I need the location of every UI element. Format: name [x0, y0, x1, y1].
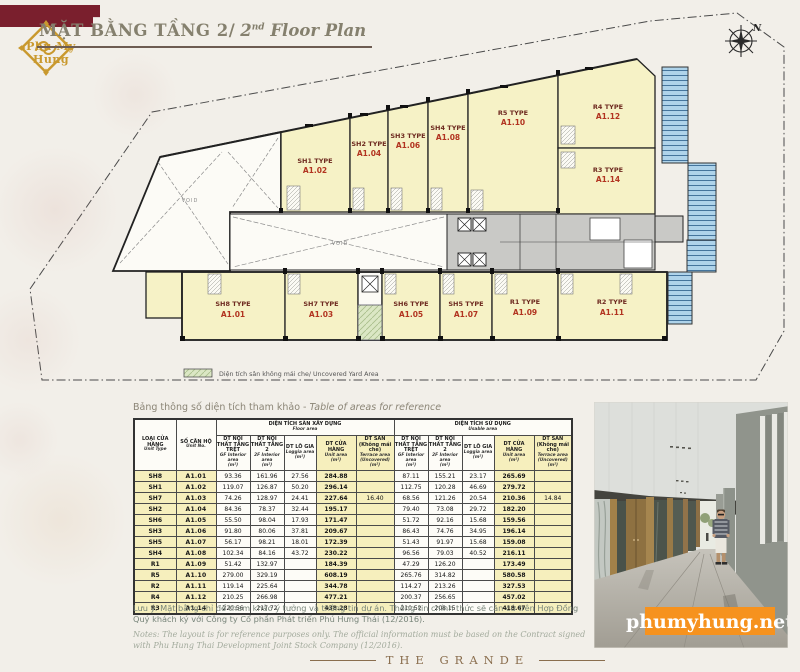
void-label: VOID: [182, 198, 199, 204]
sub-col-header: DT CỬA HÀNGUnit area(m²): [316, 436, 356, 471]
table-cell: 216.11: [494, 548, 534, 559]
table-cell: [356, 581, 394, 592]
table-cell: [356, 570, 394, 581]
sub-col-header: DT SÂN (Không mái che)Terrace area (Unco…: [356, 436, 394, 471]
table-row: R4A1.12210.25266.98477.21200.37256.65457…: [134, 592, 572, 603]
table-cell: 121.26: [428, 493, 462, 504]
table-cell: SH2: [134, 504, 176, 515]
table-cell: [534, 482, 572, 493]
table-cell: 213.26: [428, 581, 462, 592]
table-cell: 23.17: [462, 471, 494, 482]
table-cell: 126.87: [250, 482, 284, 493]
table-row: SH8A1.0193.36161.9627.56284.8887.11155.2…: [134, 471, 572, 482]
table-cell: 98.21: [250, 537, 284, 548]
table-cell: 284.88: [316, 471, 356, 482]
floor-plan: VOID VOID: [0, 0, 800, 400]
stair-ramp-a: [662, 67, 688, 163]
table-cell: [356, 592, 394, 603]
svg-text:SH7 TYPE: SH7 TYPE: [303, 300, 338, 308]
svg-text:SH1 TYPE: SH1 TYPE: [297, 157, 332, 165]
table-cell: 73.08: [428, 504, 462, 515]
table-cell: 74.76: [428, 526, 462, 537]
table-cell: 112.75: [394, 482, 428, 493]
svg-text:SH2 TYPE: SH2 TYPE: [351, 140, 386, 148]
svg-text:SH8 TYPE: SH8 TYPE: [215, 300, 250, 308]
table-cell: SH3: [134, 526, 176, 537]
svg-text:A1.01: A1.01: [221, 310, 245, 319]
table-cell: SH4: [134, 548, 176, 559]
page-title: MẶT BẰNG TẦNG 2/2nd Floor Plan: [37, 6, 372, 48]
table-row: R5A1.10279.00329.19608.19265.76314.82580…: [134, 570, 572, 581]
table-cell: [462, 570, 494, 581]
table-cell: 155.21: [428, 471, 462, 482]
table-cell: 79.03: [428, 548, 462, 559]
table-cell: 79.40: [394, 504, 428, 515]
title-english: 2nd Floor Plan: [240, 21, 366, 40]
table-cell: 68.56: [394, 493, 428, 504]
svg-text:A1.04: A1.04: [357, 149, 381, 158]
table-row: SH1A1.02119.07126.8750.20296.14112.75120…: [134, 482, 572, 493]
table-cell: A1.11: [176, 581, 216, 592]
table-cell: 200.37: [394, 592, 428, 603]
table-cell: 87.11: [394, 471, 428, 482]
unit-R2: [558, 272, 667, 340]
note-english: Notes: The layout is for reference purpo…: [133, 630, 591, 651]
title-vietnamese: MẶT BẰNG TẦNG 2/: [39, 21, 235, 40]
table-cell: [534, 548, 572, 559]
table-cell: [356, 515, 394, 526]
table-cell: 344.78: [316, 581, 356, 592]
svg-text:R5 TYPE: R5 TYPE: [498, 109, 528, 117]
table-cell: A1.06: [176, 526, 216, 537]
table-cell: 126.20: [428, 559, 462, 570]
table-cell: 98.04: [250, 515, 284, 526]
table-cell: 93.36: [216, 471, 250, 482]
table-cell: 279.00: [216, 570, 250, 581]
svg-text:A1.12: A1.12: [596, 112, 620, 121]
table-cell: 18.01: [284, 537, 316, 548]
top-units: [281, 59, 655, 214]
sub-col-header: DT CỬA HÀNGUnit area(m²): [494, 436, 534, 471]
table-cell: 477.21: [316, 592, 356, 603]
col-header-unit-no: SỐ CĂN HỘ Unit No.: [176, 419, 216, 471]
svg-text:SH6 TYPE: SH6 TYPE: [393, 300, 428, 308]
sub-col-header: DT NỘI THẤT TẦNG TRỆTGF Interior area(m²…: [394, 436, 428, 471]
table-cell: A1.03: [176, 493, 216, 504]
stair-ramp-b: [688, 163, 716, 240]
table-cell: A1.05: [176, 515, 216, 526]
svg-text:R3 TYPE: R3 TYPE: [593, 166, 623, 174]
table-cell: 580.58: [494, 570, 534, 581]
table-cell: 27.56: [284, 471, 316, 482]
table-cell: 46.69: [462, 482, 494, 493]
table-cell: 102.34: [216, 548, 250, 559]
table-cell: [534, 570, 572, 581]
table-cell: 74.26: [216, 493, 250, 504]
table-cell: [284, 592, 316, 603]
svg-text:SH4 TYPE: SH4 TYPE: [430, 124, 465, 132]
table-cell: A1.01: [176, 471, 216, 482]
compass-n-label: N: [752, 24, 762, 34]
table-cell: 51.72: [394, 515, 428, 526]
table-cell: 182.20: [494, 504, 534, 515]
table-row: SH5A1.0756.1798.2118.01172.3951.4391.971…: [134, 537, 572, 548]
table-row: R2A1.11119.14225.64344.78114.27213.26327…: [134, 581, 572, 592]
table-cell: SH8: [134, 471, 176, 482]
table-cell: 265.76: [394, 570, 428, 581]
table-cell: [462, 559, 494, 570]
legend-label: Diện tích sân không mái che/ Uncovered Y…: [219, 370, 379, 378]
walkway-photo: phumyhung.net: [594, 402, 788, 648]
svg-text:A1.14: A1.14: [596, 175, 620, 184]
col-header-unit-type: LOẠI CỬA HÀNG Unit Type: [134, 419, 176, 471]
table-cell: SH5: [134, 537, 176, 548]
table-cell: 327.53: [494, 581, 534, 592]
table-cell: 37.81: [284, 526, 316, 537]
table-cell: [534, 592, 572, 603]
table-cell: A1.07: [176, 537, 216, 548]
plan-legend: Diện tích sân không mái che/ Uncovered Y…: [184, 369, 379, 378]
table-cell: [356, 504, 394, 515]
table-cell: 96.56: [394, 548, 428, 559]
table-cell: SH7: [134, 493, 176, 504]
table-cell: 184.39: [316, 559, 356, 570]
table-cell: 256.65: [428, 592, 462, 603]
group-header-usable-area: DIỆN TÍCH SỬ DỤNG Usable area: [394, 419, 572, 436]
footer: THE GRANDE: [310, 653, 605, 667]
table-row: SH7A1.0374.26128.9724.41227.6416.4068.56…: [134, 493, 572, 504]
svg-text:A1.07: A1.07: [454, 310, 478, 319]
sub-col-header: DT NỘI THẤT TẦNG 22F Interior area(m²): [428, 436, 462, 471]
table-cell: 210.25: [216, 592, 250, 603]
table-cell: A1.09: [176, 559, 216, 570]
svg-text:A1.03: A1.03: [309, 310, 333, 319]
svg-text:A1.06: A1.06: [396, 141, 420, 150]
svg-text:R4 TYPE: R4 TYPE: [593, 103, 623, 111]
table-cell: 91.80: [216, 526, 250, 537]
table-cell: 196.14: [494, 526, 534, 537]
table-cell: 119.14: [216, 581, 250, 592]
table-cell: 159.08: [494, 537, 534, 548]
table-cell: A1.10: [176, 570, 216, 581]
unit-left-sliver: [146, 272, 182, 318]
svg-text:A1.02: A1.02: [303, 166, 327, 175]
corridor: VOID: [230, 214, 683, 270]
table-title: Bảng thông số diện tích tham khảo - Tabl…: [133, 402, 441, 413]
table-cell: 80.06: [250, 526, 284, 537]
svg-text:SH5 TYPE: SH5 TYPE: [448, 300, 483, 308]
table-row: R1A1.0951.42132.97184.3947.29126.20173.4…: [134, 559, 572, 570]
footer-rule-right: [539, 660, 605, 661]
table-cell: 230.22: [316, 548, 356, 559]
table-cell: 172.39: [316, 537, 356, 548]
table-cell: 16.40: [356, 493, 394, 504]
table-cell: [356, 559, 394, 570]
table-cell: 20.54: [462, 493, 494, 504]
svg-text:A1.11: A1.11: [600, 308, 624, 317]
svg-text:R2 TYPE: R2 TYPE: [597, 298, 627, 306]
table-row: SH2A1.0484.3678.3732.44195.1779.4073.082…: [134, 504, 572, 515]
table-cell: [462, 581, 494, 592]
stair-structures: [662, 67, 716, 324]
table-cell: 32.44: [284, 504, 316, 515]
brochure-page: VOID VOID: [0, 0, 800, 672]
table-cell: [534, 581, 572, 592]
table-cell: 296.14: [316, 482, 356, 493]
table-cell: [284, 570, 316, 581]
sub-col-header: DT LÔ GIALoggia area(m²): [462, 436, 494, 471]
table-cell: R5: [134, 570, 176, 581]
table-cell: 14.84: [534, 493, 572, 504]
svg-text:SH3 TYPE: SH3 TYPE: [390, 132, 425, 140]
table-cell: [356, 471, 394, 482]
note-vietnamese: Lưu ý: Mặt bằng chỉ để tham khảo ý tưởng…: [133, 603, 591, 625]
table-row: SH4A1.08102.3484.1643.72230.2296.5679.03…: [134, 548, 572, 559]
table-cell: [534, 537, 572, 548]
table-cell: 266.98: [250, 592, 284, 603]
table-cell: 91.97: [428, 537, 462, 548]
table-cell: 17.93: [284, 515, 316, 526]
table-cell: 43.72: [284, 548, 316, 559]
table-cell: 227.64: [316, 493, 356, 504]
table-cell: 132.97: [250, 559, 284, 570]
table-cell: 78.37: [250, 504, 284, 515]
table-cell: 47.29: [394, 559, 428, 570]
table-cell: 161.96: [250, 471, 284, 482]
sub-col-header: DT LÔ GIALoggia area(m²): [284, 436, 316, 471]
table-cell: 51.43: [394, 537, 428, 548]
table-cell: 209.67: [316, 526, 356, 537]
table-cell: R4: [134, 592, 176, 603]
table-cell: 457.02: [494, 592, 534, 603]
table-cell: SH6: [134, 515, 176, 526]
stair-ramp-d: [687, 240, 716, 272]
table-cell: 279.72: [494, 482, 534, 493]
table-cell: 159.56: [494, 515, 534, 526]
table-cell: [356, 526, 394, 537]
table-cell: [534, 504, 572, 515]
table-cell: 56.17: [216, 537, 250, 548]
svg-text:R1 TYPE: R1 TYPE: [510, 298, 540, 306]
table-cell: 84.36: [216, 504, 250, 515]
table-cell: 92.16: [428, 515, 462, 526]
svg-text:A1.10: A1.10: [501, 118, 525, 127]
areas-table: LOẠI CỬA HÀNG Unit Type SỐ CĂN HỘ Unit N…: [133, 418, 573, 615]
table-cell: 34.95: [462, 526, 494, 537]
table-cell: 15.68: [462, 515, 494, 526]
group-header-floor-area: DIỆN TÍCH SÀN XÂY DỰNG Floor area: [216, 419, 394, 436]
table-cell: [284, 581, 316, 592]
table-row: SH3A1.0691.8080.0637.81209.6786.4374.763…: [134, 526, 572, 537]
table-cell: [534, 526, 572, 537]
table-cell: [462, 592, 494, 603]
table-cell: 265.69: [494, 471, 534, 482]
project-brand: THE GRANDE: [386, 653, 530, 667]
table-cell: 210.36: [494, 493, 534, 504]
table-cell: 195.17: [316, 504, 356, 515]
table-cell: 173.49: [494, 559, 534, 570]
table-row: SH6A1.0555.5098.0417.93171.4751.7292.161…: [134, 515, 572, 526]
table-cell: [534, 471, 572, 482]
svg-text:A1.08: A1.08: [436, 133, 460, 142]
table-cell: A1.02: [176, 482, 216, 493]
table-cell: 15.68: [462, 537, 494, 548]
table-cell: R1: [134, 559, 176, 570]
table-cell: 114.27: [394, 581, 428, 592]
table-cell: R2: [134, 581, 176, 592]
sub-col-header: DT NỘI THẤT TẦNG 22F Interior area(m²): [250, 436, 284, 471]
table-cell: [356, 537, 394, 548]
sub-col-header: DT NỘI THẤT TẦNG TRỆTGF Interior area(m²…: [216, 436, 250, 471]
table-cell: A1.04: [176, 504, 216, 515]
table-cell: SH1: [134, 482, 176, 493]
table-cell: 119.07: [216, 482, 250, 493]
table-cell: 171.47: [316, 515, 356, 526]
table-cell: [284, 559, 316, 570]
table-cell: [534, 515, 572, 526]
table-cell: A1.12: [176, 592, 216, 603]
table-cell: 55.50: [216, 515, 250, 526]
table-cell: 84.16: [250, 548, 284, 559]
notes: Lưu ý: Mặt bằng chỉ để tham khảo ý tưởng…: [133, 603, 591, 651]
void-label: VOID: [332, 241, 349, 247]
svg-text:A1.09: A1.09: [513, 308, 537, 317]
table-cell: [534, 559, 572, 570]
site-url[interactable]: phumyhung.net: [626, 611, 788, 633]
svg-text:A1.05: A1.05: [399, 310, 423, 319]
footer-rule-left: [310, 660, 376, 661]
table-cell: 86.43: [394, 526, 428, 537]
table-cell: 608.19: [316, 570, 356, 581]
table-cell: 128.97: [250, 493, 284, 504]
compass-icon: N: [725, 24, 762, 57]
table-cell: 50.20: [284, 482, 316, 493]
uncovered-yard: [358, 305, 382, 340]
table-cell: A1.08: [176, 548, 216, 559]
table-cell: 120.28: [428, 482, 462, 493]
table-cell: [356, 548, 394, 559]
sub-col-header: DT SÂN (Không mái che)Terrace area (Unco…: [534, 436, 572, 471]
stair-ramp-c: [668, 272, 692, 324]
table-cell: 314.82: [428, 570, 462, 581]
table-cell: 51.42: [216, 559, 250, 570]
table-cell: 24.41: [284, 493, 316, 504]
table-cell: 225.64: [250, 581, 284, 592]
table-cell: [356, 482, 394, 493]
table-cell: 40.52: [462, 548, 494, 559]
table-cell: 329.19: [250, 570, 284, 581]
table-cell: 29.72: [462, 504, 494, 515]
